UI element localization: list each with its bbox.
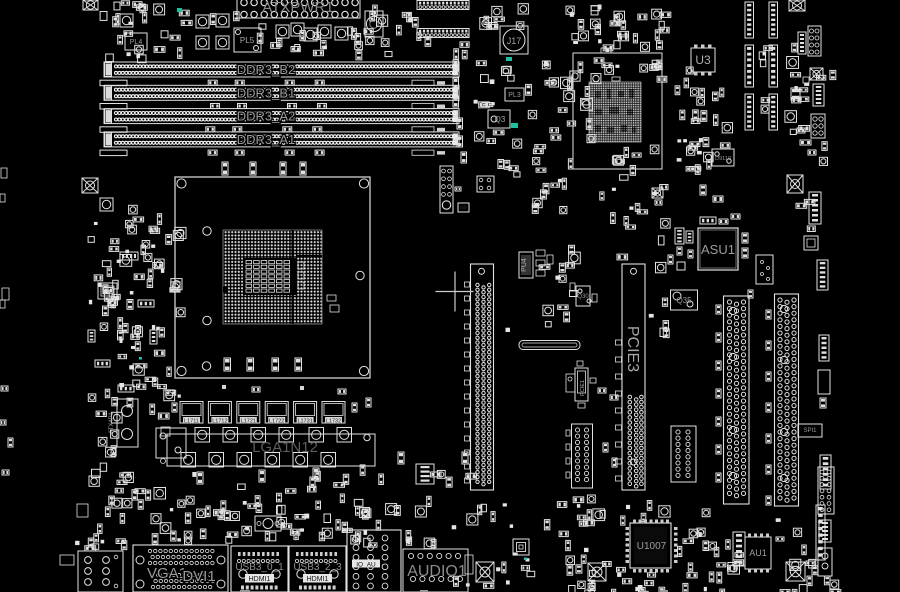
svg-text:LGA1N12: LGA1N12 xyxy=(252,439,318,456)
svg-text:IO_AU: IO_AU xyxy=(356,562,376,569)
svg-text:DVI1: DVI1 xyxy=(182,568,215,585)
svg-text:DDR3_B1: DDR3_B1 xyxy=(237,85,296,100)
svg-text:DDR3_A1: DDR3_A1 xyxy=(237,132,296,147)
svg-text:J17: J17 xyxy=(507,36,522,46)
svg-text:HDMI1: HDMI1 xyxy=(249,576,271,583)
svg-text:PL3: PL3 xyxy=(508,92,521,99)
svg-text:L1732: L1732 xyxy=(326,419,341,425)
svg-text:ATX4P1: ATX4P1 xyxy=(109,411,115,434)
svg-text:VGA1: VGA1 xyxy=(147,565,187,582)
svg-text:ATXPWR1: ATXPWR1 xyxy=(262,0,333,16)
svg-text:USB3_2_3: USB3_2_3 xyxy=(293,562,342,573)
svg-text:D9110: D9110 xyxy=(715,156,731,162)
svg-text:SPI1: SPI1 xyxy=(803,428,817,434)
svg-text:PCIE1: PCIE1 xyxy=(580,380,586,396)
svg-text:PCIE3: PCIE3 xyxy=(624,326,641,372)
svg-text:Q3: Q3 xyxy=(495,115,506,124)
svg-text:DDR3_A2: DDR3_A2 xyxy=(237,109,296,124)
svg-text:PU4: PU4 xyxy=(521,258,528,272)
svg-text:L1712: L1712 xyxy=(212,419,227,425)
svg-text:HDMI1: HDMI1 xyxy=(307,576,329,583)
svg-text:Q35: Q35 xyxy=(676,296,692,305)
svg-text:L1731: L1731 xyxy=(297,419,312,425)
svg-text:AU1: AU1 xyxy=(749,548,767,558)
svg-text:L1711: L1711 xyxy=(184,419,199,425)
svg-text:L1722: L1722 xyxy=(269,419,284,425)
svg-text:U3: U3 xyxy=(695,53,711,67)
svg-text:L1721: L1721 xyxy=(241,419,256,425)
svg-text:PL5: PL5 xyxy=(240,36,255,45)
svg-text:DDR3_B2: DDR3_B2 xyxy=(237,62,296,77)
svg-text:ASU1: ASU1 xyxy=(701,242,735,257)
svg-text:Q30: Q30 xyxy=(577,294,589,300)
svg-text:USB3_0_1: USB3_0_1 xyxy=(235,562,284,573)
svg-text:U1007: U1007 xyxy=(637,541,667,552)
